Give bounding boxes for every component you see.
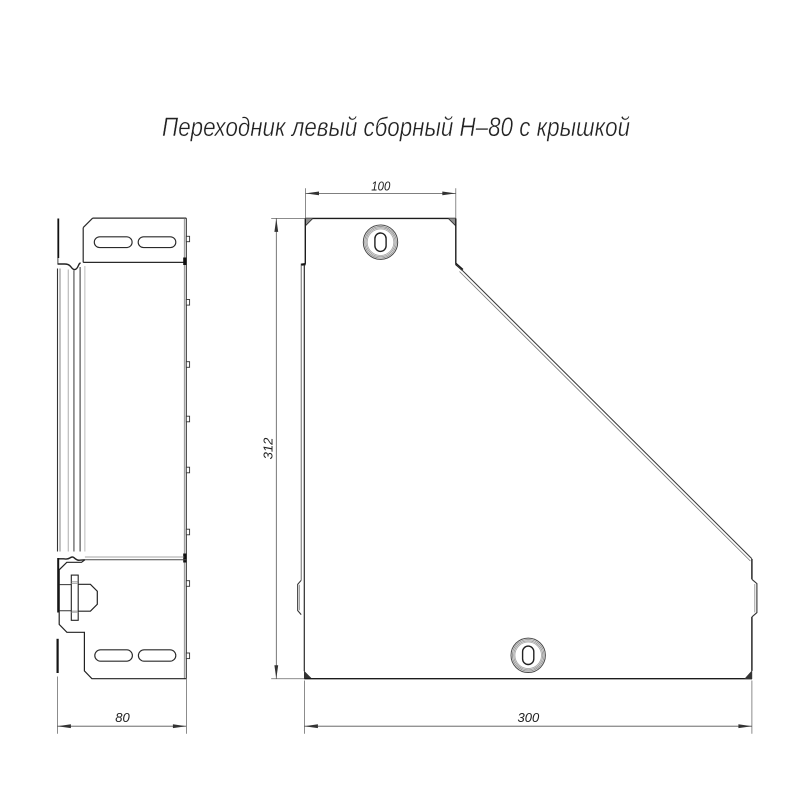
svg-text:100: 100 xyxy=(371,178,391,193)
svg-text:Переходник левый сборный Н–80: Переходник левый сборный Н–80 с крышкой xyxy=(162,112,630,142)
svg-text:80: 80 xyxy=(115,710,130,725)
svg-text:300: 300 xyxy=(518,710,540,725)
svg-text:312: 312 xyxy=(261,437,276,459)
